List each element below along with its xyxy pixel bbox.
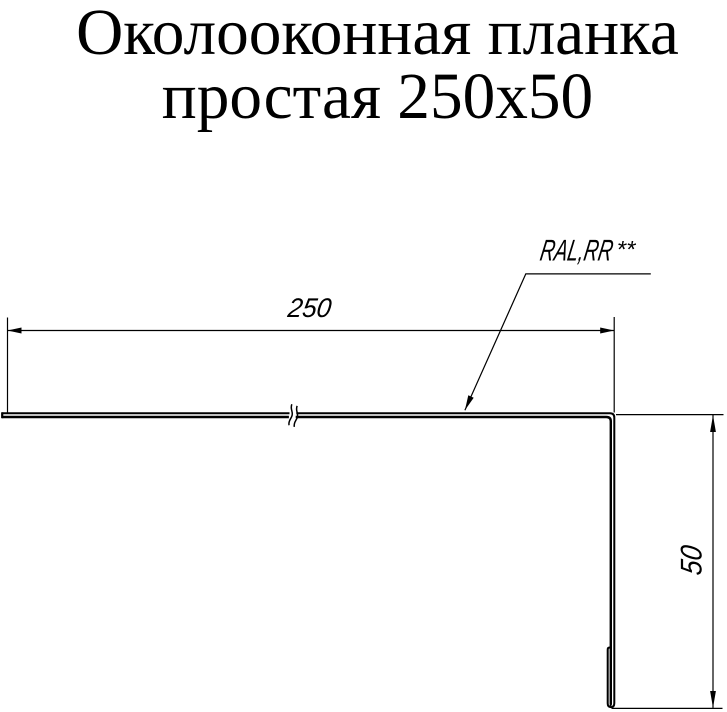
- svg-text:50: 50: [675, 543, 708, 577]
- svg-text:250: 250: [285, 292, 333, 323]
- svg-text:RAL,RR: RAL,RR: [538, 235, 616, 268]
- svg-text:**: **: [613, 237, 638, 264]
